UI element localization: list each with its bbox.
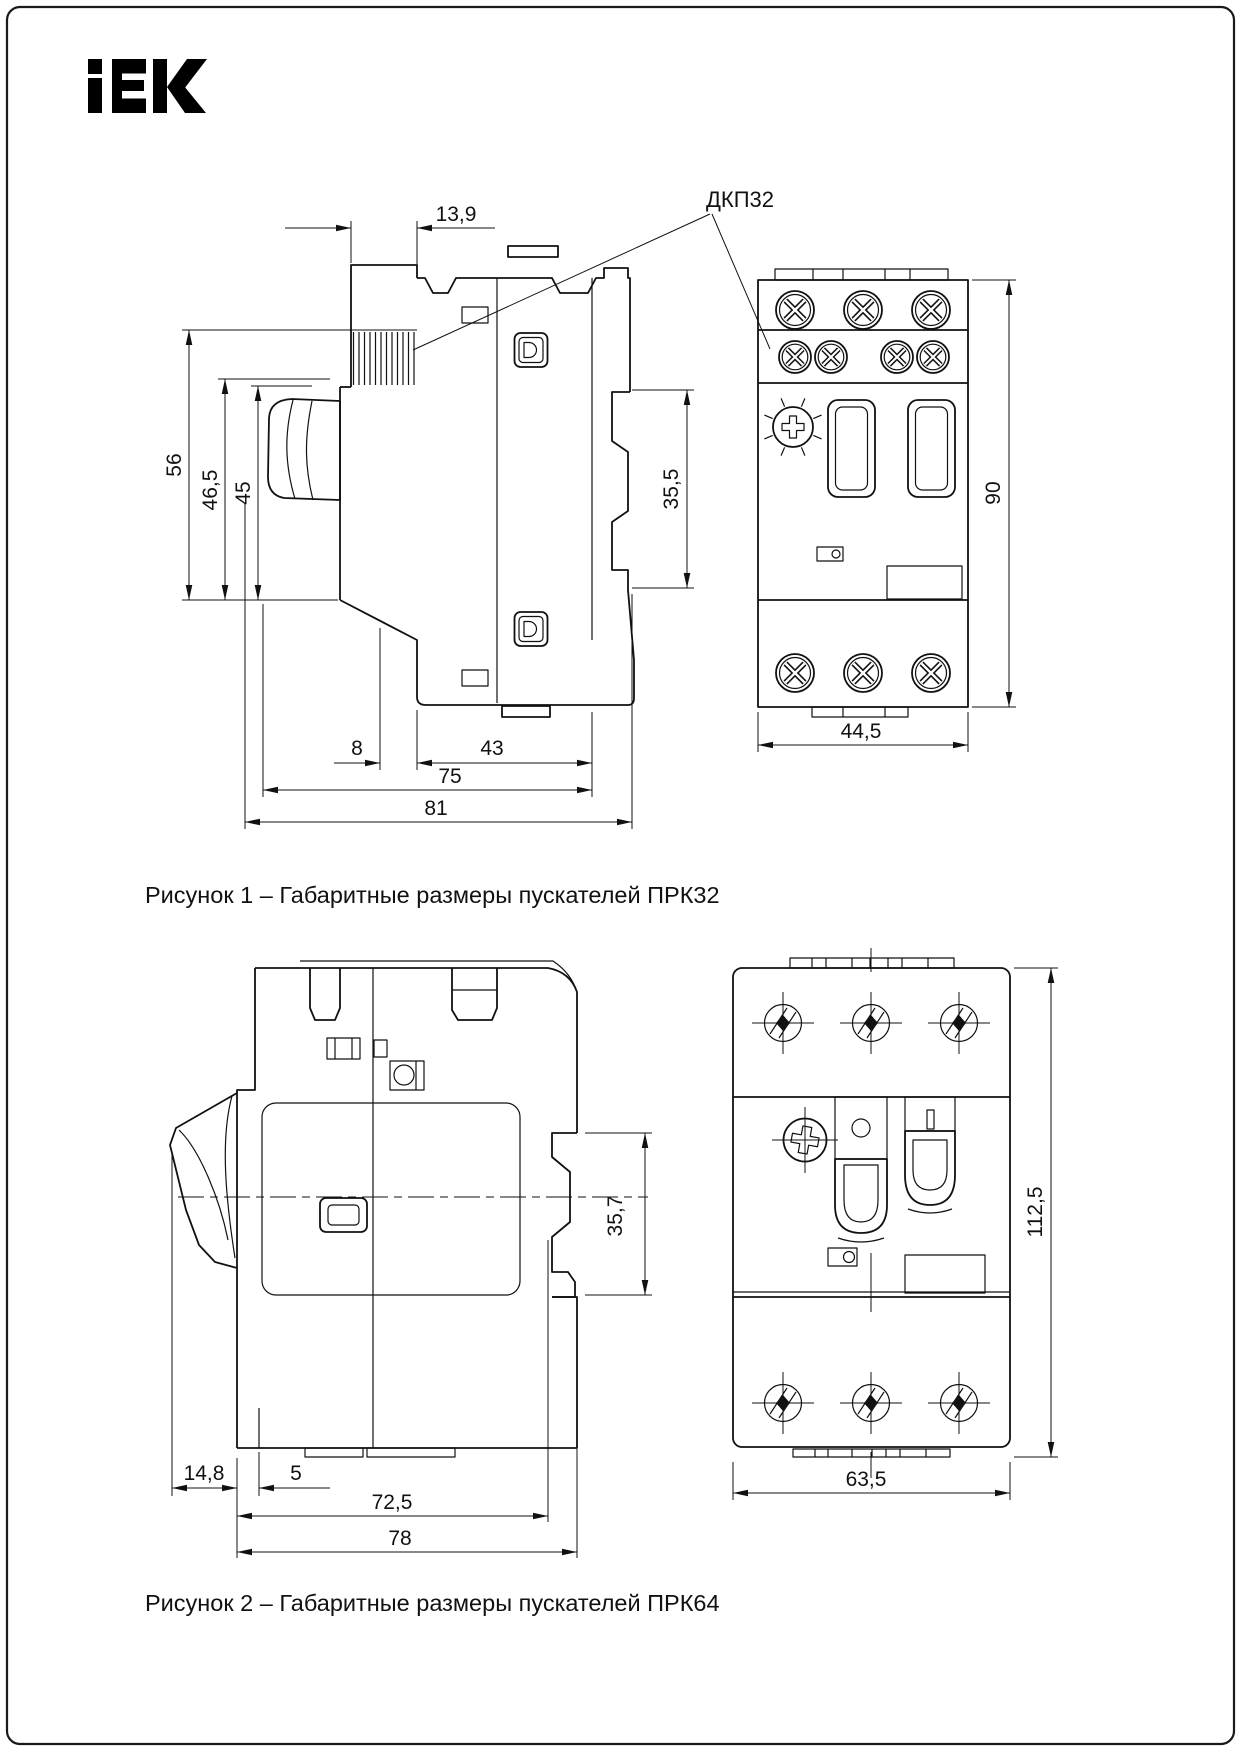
dim-base-offset: 8 [351,737,363,760]
dim2-front-height: 112,5 [1024,1187,1047,1238]
dim2-step: 5 [290,1462,302,1485]
dim-height-total: 56 [163,453,186,476]
dim-height-inner: 45 [232,481,255,504]
document-page: ДКП32 13,9 56 46,5 45 [0,0,1241,1751]
callout-label: ДКП32 [706,187,774,212]
dim-depth: 75 [438,765,461,788]
dim-body-depth: 43 [480,737,503,760]
technical-drawing: ДКП32 13,9 56 46,5 45 [0,0,1241,1751]
dim-height-front: 46,5 [199,470,222,511]
dim2-body-depth: 72,5 [372,1491,413,1514]
dim2-rail-height: 35,7 [604,1196,627,1237]
figure2-caption: Рисунок 2 – Габаритные размеры пускателе… [145,1590,720,1616]
dim-rail-height: 35,5 [660,469,683,510]
dim-front-height: 90 [982,481,1005,504]
dim-front-width: 44,5 [841,720,882,743]
dim2-front-width: 63,5 [846,1468,887,1491]
dim-depth-total: 81 [424,797,447,820]
figure1-caption: Рисунок 1 – Габаритные размеры пускателе… [145,882,720,908]
dim2-depth-total: 78 [388,1527,411,1550]
dim2-lever-depth: 14,8 [184,1462,225,1485]
dim-knob-width: 13,9 [436,203,477,226]
